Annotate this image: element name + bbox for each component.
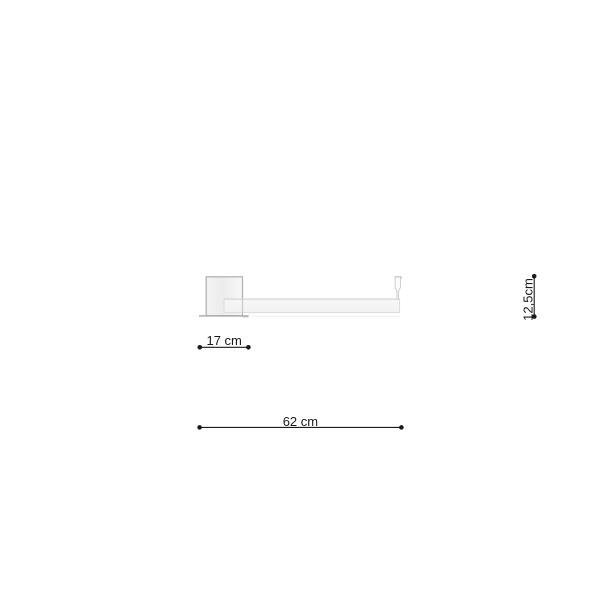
svg-text:17 cm: 17 cm	[206, 333, 241, 348]
svg-text:12,5cm: 12,5cm	[520, 278, 535, 321]
svg-text:62 cm: 62 cm	[283, 414, 318, 429]
